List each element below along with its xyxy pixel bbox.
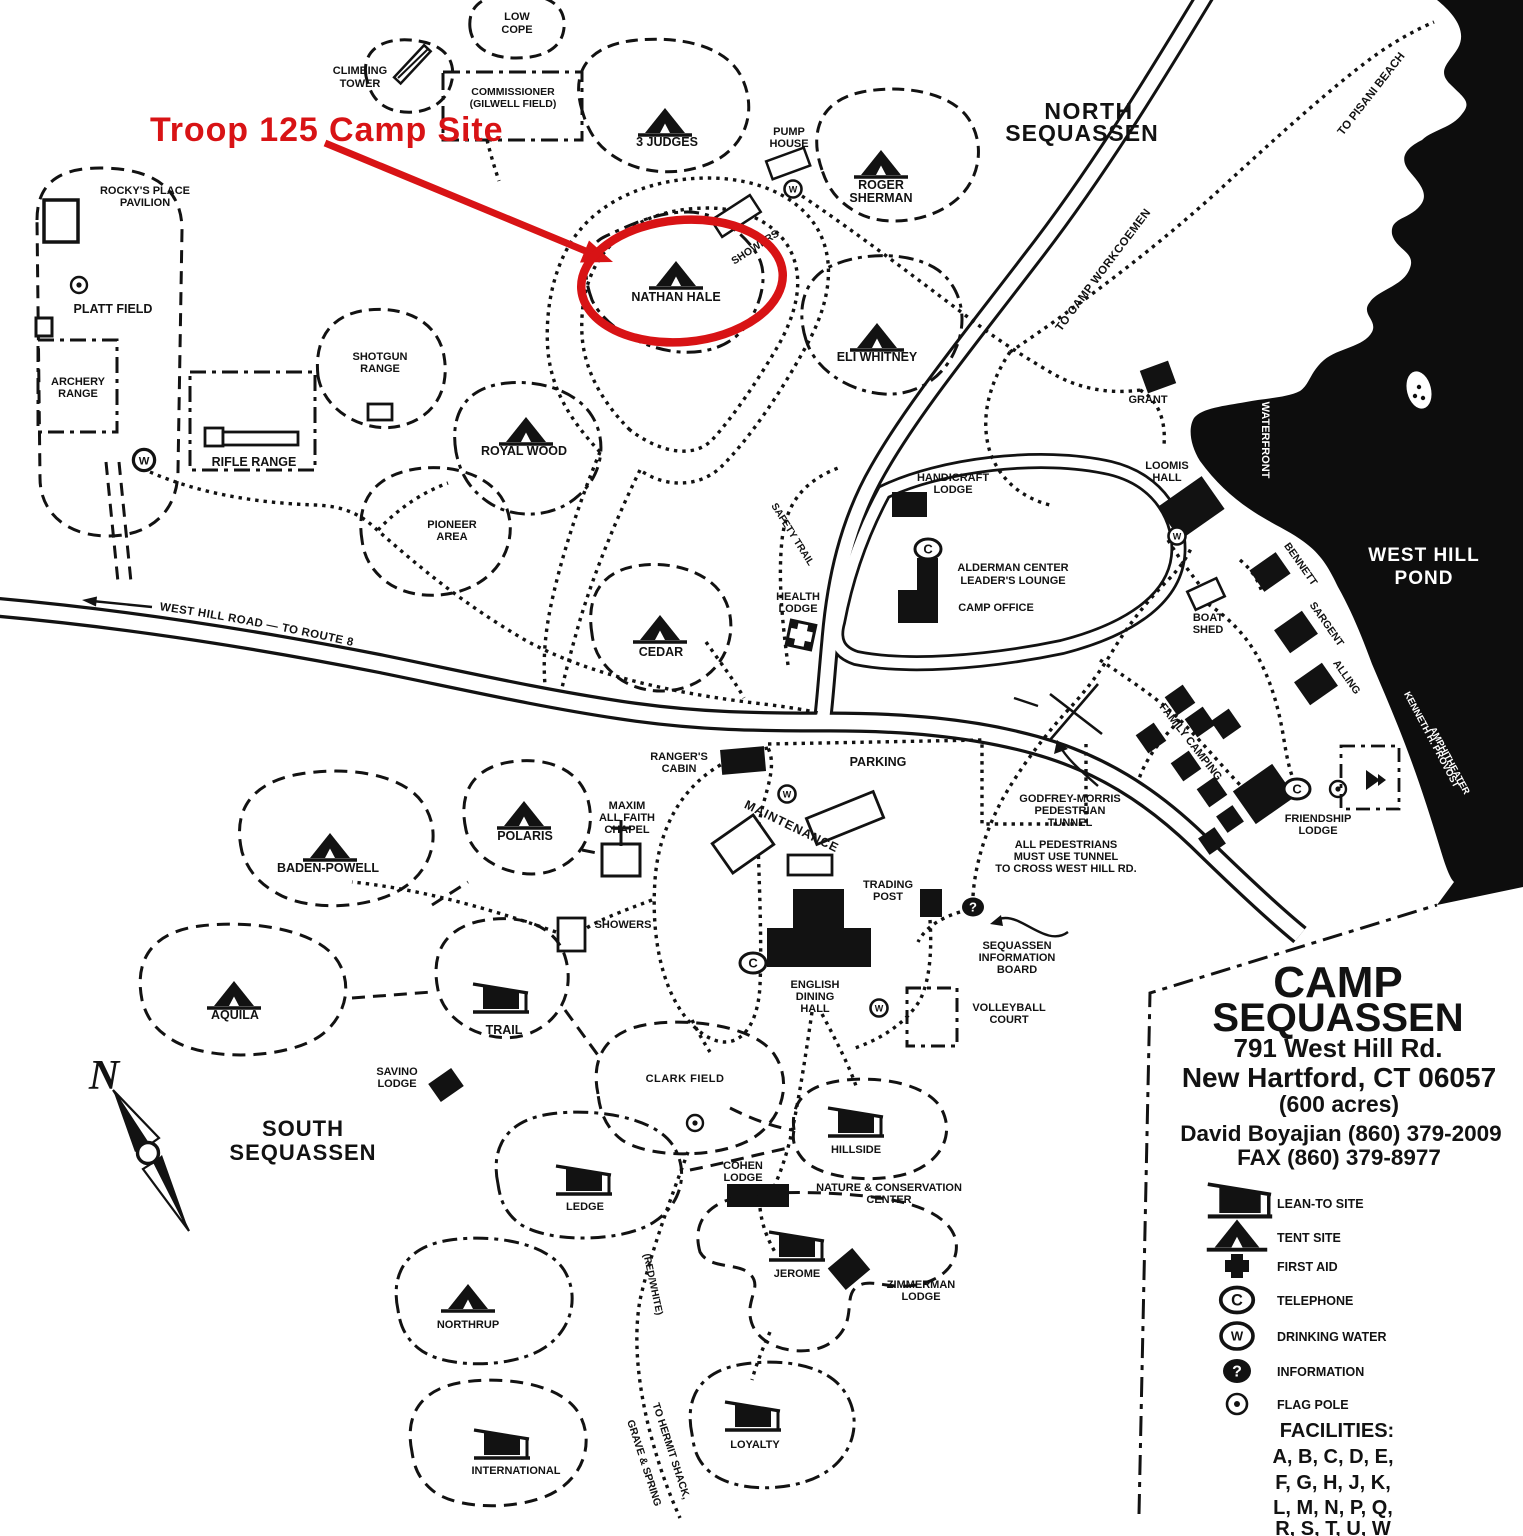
svg-text:POND: POND [1395, 568, 1454, 589]
svg-text:LODGE: LODGE [933, 484, 972, 496]
svg-text:TRAIL: TRAIL [486, 1023, 523, 1037]
svg-text:TELEPHONE: TELEPHONE [1277, 1294, 1353, 1308]
svg-text:SEQUASSEN: SEQUASSEN [229, 1140, 376, 1165]
svg-text:WEST HILL: WEST HILL [1368, 545, 1479, 566]
svg-text:CLIMBING: CLIMBING [333, 65, 387, 77]
svg-text:HALL: HALL [1152, 472, 1182, 484]
svg-text:ROYAL WOOD: ROYAL WOOD [481, 444, 567, 458]
svg-text:ELI WHITNEY: ELI WHITNEY [837, 350, 918, 364]
svg-text:LOW: LOW [504, 11, 530, 23]
svg-text:PUMP: PUMP [773, 126, 805, 138]
svg-text:SHOTGUN: SHOTGUN [353, 351, 408, 363]
svg-text:CLARK FIELD: CLARK FIELD [646, 1073, 725, 1085]
svg-text:New Hartford, CT 06057: New Hartford, CT 06057 [1182, 1062, 1496, 1093]
svg-text:L, M, N, P, Q,: L, M, N, P, Q, [1273, 1497, 1393, 1519]
svg-text:BOARD: BOARD [997, 964, 1037, 976]
svg-text:TOWER: TOWER [340, 78, 381, 90]
svg-text:COURT: COURT [989, 1014, 1028, 1026]
svg-text:PLATT FIELD: PLATT FIELD [74, 302, 153, 316]
svg-text:TO CROSS WEST HILL RD.: TO CROSS WEST HILL RD. [995, 863, 1136, 875]
svg-text:MUST USE TUNNEL: MUST USE TUNNEL [1014, 851, 1119, 863]
svg-text:BADEN-POWELL: BADEN-POWELL [277, 861, 379, 875]
svg-text:HALL: HALL [800, 1003, 830, 1015]
svg-text:LEDGE: LEDGE [566, 1201, 604, 1213]
svg-text:HANDICRAFT: HANDICRAFT [917, 472, 989, 484]
svg-text:W: W [1231, 1329, 1244, 1344]
svg-text:COMMISSIONER: COMMISSIONER [471, 86, 555, 98]
svg-text:HEALTH: HEALTH [776, 591, 820, 603]
svg-text:TRADING: TRADING [863, 879, 913, 891]
svg-text:TENT SITE: TENT SITE [1277, 1231, 1341, 1245]
svg-text:DINING: DINING [796, 991, 835, 1003]
svg-text:RIFLE RANGE: RIFLE RANGE [212, 455, 297, 469]
svg-text:HILLSIDE: HILLSIDE [831, 1144, 881, 1156]
svg-text:PAVILION: PAVILION [120, 197, 170, 209]
svg-text:SHOWERS: SHOWERS [595, 919, 652, 931]
svg-text:CHAPEL: CHAPEL [604, 824, 650, 836]
svg-text:RANGE: RANGE [360, 363, 400, 375]
svg-text:RANGER'S: RANGER'S [650, 751, 708, 763]
svg-text:C: C [1231, 1292, 1243, 1310]
svg-text:PIONEER: PIONEER [427, 519, 477, 531]
svg-text:ENGLISH: ENGLISH [791, 979, 840, 991]
svg-text:LODGE: LODGE [901, 1291, 940, 1303]
svg-text:VOLLEYBALL: VOLLEYBALL [972, 1002, 1046, 1014]
svg-text:F, G, H, J, K,: F, G, H, J, K, [1275, 1472, 1391, 1494]
svg-text:POLARIS: POLARIS [497, 829, 553, 843]
svg-text:David Boyajian (860) 379-2009: David Boyajian (860) 379-2009 [1180, 1121, 1501, 1146]
svg-text:A, B, C, D, E,: A, B, C, D, E, [1272, 1446, 1393, 1468]
svg-text:TUNNEL: TUNNEL [1048, 817, 1093, 829]
svg-text:ARCHERY: ARCHERY [51, 376, 106, 388]
svg-text:ALL PEDESTRIANS: ALL PEDESTRIANS [1015, 839, 1117, 851]
svg-text:ROGER: ROGER [858, 178, 904, 192]
svg-text:PEDESTRIAN: PEDESTRIAN [1035, 805, 1106, 817]
svg-text:LOOMIS: LOOMIS [1145, 460, 1188, 472]
svg-text:LEADER'S LOUNGE: LEADER'S LOUNGE [960, 575, 1065, 587]
svg-text:LODGE: LODGE [377, 1078, 416, 1090]
svg-text:GODFREY-MORRIS: GODFREY-MORRIS [1019, 793, 1120, 805]
svg-text:LODGE: LODGE [1298, 825, 1337, 837]
svg-text:LODGE: LODGE [778, 603, 817, 615]
svg-text:ALL FAITH: ALL FAITH [599, 812, 655, 824]
svg-text:3 JUDGES: 3 JUDGES [636, 135, 698, 149]
svg-text:POST: POST [873, 891, 903, 903]
svg-text:AREA: AREA [436, 531, 467, 543]
svg-text:FIRST AID: FIRST AID [1277, 1260, 1338, 1274]
svg-text:LEAN-TO SITE: LEAN-TO SITE [1277, 1197, 1364, 1211]
svg-text:LODGE: LODGE [723, 1172, 762, 1184]
svg-text:AQUILA: AQUILA [211, 1008, 259, 1022]
svg-text:FLAG POLE: FLAG POLE [1277, 1398, 1349, 1412]
svg-text:MAXIM: MAXIM [609, 800, 646, 812]
svg-text:JEROME: JEROME [774, 1268, 820, 1280]
svg-text:SHERMAN: SHERMAN [849, 191, 912, 205]
svg-text:ALDERMAN CENTER: ALDERMAN CENTER [957, 562, 1068, 574]
svg-text:CEDAR: CEDAR [639, 645, 683, 659]
svg-text:INFORMATION: INFORMATION [1277, 1365, 1364, 1379]
svg-text:R, S, T, U, W: R, S, T, U, W [1275, 1518, 1391, 1536]
svg-text:ZIMMERMAN: ZIMMERMAN [887, 1279, 955, 1291]
svg-text:GRANT: GRANT [1128, 394, 1167, 406]
svg-text:(600 acres): (600 acres) [1279, 1091, 1399, 1117]
svg-text:791 West Hill Rd.: 791 West Hill Rd. [1233, 1033, 1442, 1063]
svg-text:FACILITIES:: FACILITIES: [1280, 1420, 1394, 1442]
svg-text:CAMP OFFICE: CAMP OFFICE [958, 602, 1034, 614]
svg-text:NATURE & CONSERVATION: NATURE & CONSERVATION [816, 1182, 962, 1194]
svg-text:COPE: COPE [501, 24, 532, 36]
svg-text:WATERFRONT: WATERFRONT [1259, 402, 1271, 479]
svg-text:COHEN: COHEN [723, 1160, 763, 1172]
svg-text:SHED: SHED [1193, 624, 1224, 636]
svg-text:CABIN: CABIN [662, 763, 697, 775]
svg-text:PARKING: PARKING [850, 755, 907, 769]
svg-text:SEQUASSEN: SEQUASSEN [1005, 120, 1158, 146]
svg-text:INFORMATION: INFORMATION [979, 952, 1056, 964]
svg-text:LOYALTY: LOYALTY [730, 1439, 780, 1451]
svg-text:INTERNATIONAL: INTERNATIONAL [471, 1465, 560, 1477]
svg-text:(GILWELL FIELD): (GILWELL FIELD) [470, 98, 557, 110]
svg-text:?: ? [1232, 1364, 1242, 1381]
svg-text:SAVINO: SAVINO [376, 1066, 418, 1078]
svg-text:FRIENDSHIP: FRIENDSHIP [1285, 813, 1352, 825]
svg-text:DRINKING WATER: DRINKING WATER [1277, 1330, 1387, 1344]
svg-text:FAX (860) 379-8977: FAX (860) 379-8977 [1237, 1145, 1441, 1170]
svg-text:RANGE: RANGE [58, 388, 98, 400]
svg-text:NATHAN HALE: NATHAN HALE [631, 290, 720, 304]
svg-text:SEQUASSEN: SEQUASSEN [982, 940, 1051, 952]
svg-text:SOUTH: SOUTH [262, 1116, 344, 1141]
svg-text:NORTHRUP: NORTHRUP [437, 1319, 499, 1331]
svg-text:ROCKY'S PLACE: ROCKY'S PLACE [100, 185, 190, 197]
svg-text:BOAT: BOAT [1193, 612, 1224, 624]
